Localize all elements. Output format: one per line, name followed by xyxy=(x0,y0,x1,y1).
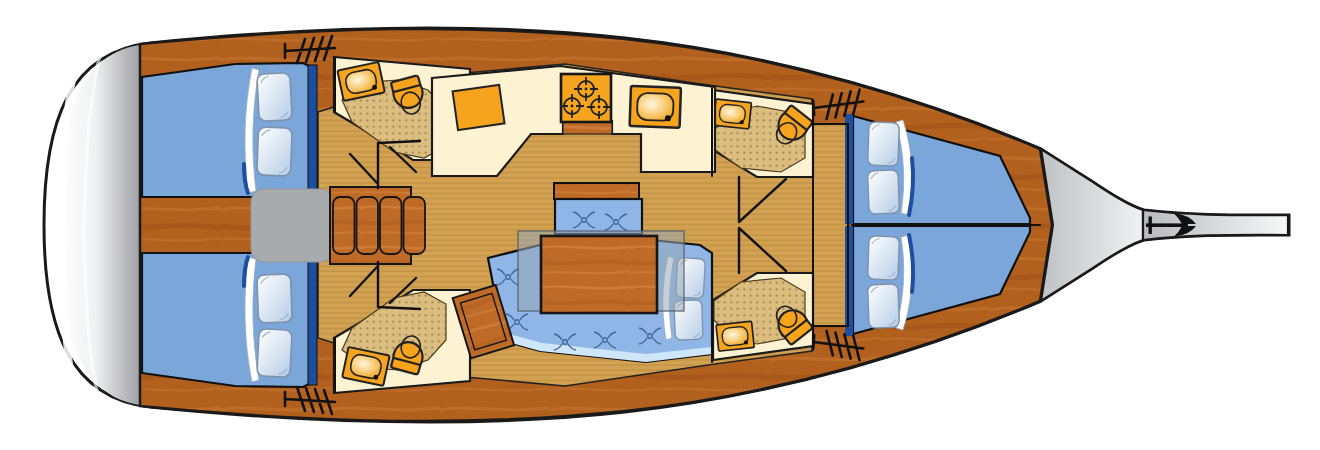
galley-counter-module xyxy=(453,85,505,130)
floor-plan-canvas xyxy=(0,0,1320,450)
galley-sink xyxy=(630,86,681,128)
foredeck xyxy=(1041,149,1143,301)
pillow-icon xyxy=(257,127,292,176)
companionway-landing xyxy=(251,189,333,262)
pillow-icon xyxy=(257,274,292,323)
pillow-icon xyxy=(868,170,900,214)
bench-seat xyxy=(555,199,642,234)
galley-stove xyxy=(560,74,611,122)
aft-cabin-port xyxy=(142,63,315,197)
companionway xyxy=(251,187,425,264)
bow xyxy=(1041,149,1288,301)
salon-table xyxy=(541,236,657,313)
pillow-icon xyxy=(257,329,292,378)
pillow-icon xyxy=(868,122,900,166)
aft-cabin-starboard xyxy=(142,253,315,387)
sink-icon xyxy=(713,99,751,129)
bench-backrest xyxy=(554,183,639,199)
pillow-icon xyxy=(868,236,900,280)
swim-platform xyxy=(58,45,140,405)
pillow-icon xyxy=(257,73,292,122)
pillow-icon xyxy=(868,284,900,328)
yacht-floor-plan xyxy=(0,0,1320,450)
sink-icon xyxy=(716,321,754,351)
